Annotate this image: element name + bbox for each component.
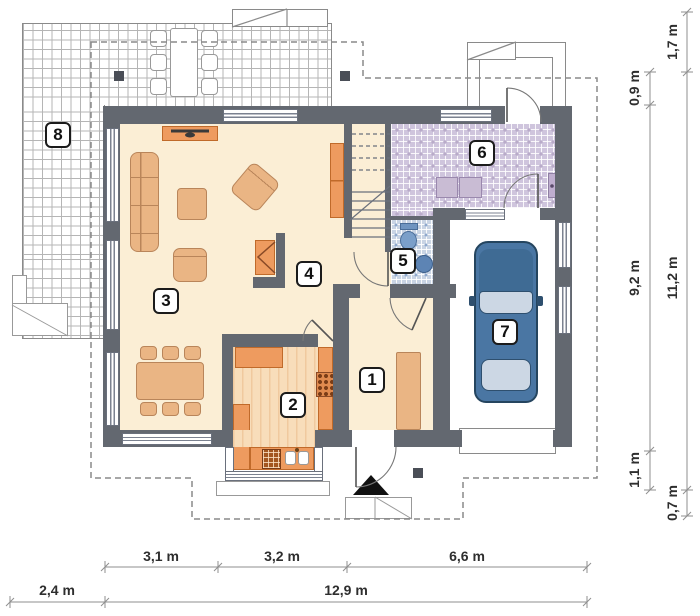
car-windshield	[479, 291, 533, 314]
wall	[333, 284, 360, 298]
dishwasher	[262, 449, 281, 469]
bay-window	[225, 471, 323, 481]
washbasin	[415, 255, 433, 273]
patio-chair	[150, 78, 167, 95]
dining-chair	[184, 346, 201, 360]
terrace-step	[12, 275, 27, 305]
wall	[540, 208, 557, 220]
room-number: 3	[161, 291, 170, 311]
hall-sidelight	[465, 209, 505, 220]
room-number: 6	[477, 143, 486, 163]
wall	[391, 216, 433, 220]
kitchen-counter	[235, 347, 283, 368]
patio-chair	[201, 78, 218, 95]
window	[106, 128, 119, 222]
room-label-4: 4	[296, 261, 322, 287]
coffee-table	[177, 188, 207, 220]
dining-table	[136, 362, 204, 400]
car-hood	[479, 249, 533, 293]
dim-label-3-2m: 3,2 m	[264, 548, 300, 564]
dim-label-1-7m: 1,7 m	[664, 24, 680, 60]
window	[106, 352, 119, 426]
entry-steps	[345, 497, 412, 519]
dim-label-9-2m: 9,2 m	[626, 260, 642, 296]
room-number: 2	[288, 395, 297, 415]
sink-basin	[285, 451, 296, 465]
entrance-arrow-icon	[353, 475, 389, 495]
garage-opening	[462, 430, 553, 447]
tv-cabinet	[162, 126, 218, 141]
wall	[344, 124, 352, 238]
wall	[390, 284, 456, 298]
patio-table	[170, 28, 198, 97]
wardrobe	[396, 352, 421, 430]
porch-post	[114, 71, 124, 81]
window	[440, 109, 492, 122]
room-label-5: 5	[390, 248, 416, 274]
wall	[222, 334, 318, 347]
porch-post	[340, 71, 350, 81]
armchair	[173, 248, 207, 282]
room-number: 4	[304, 264, 313, 284]
patio-chair	[201, 30, 218, 47]
chimney	[232, 9, 328, 27]
fireplace	[255, 240, 275, 275]
window	[558, 286, 571, 334]
window	[122, 433, 212, 445]
dim-label-0-7m: 0,7 m	[664, 485, 680, 521]
wall	[555, 106, 572, 447]
door-opening	[318, 334, 333, 347]
wall	[433, 208, 450, 284]
door-opening	[352, 430, 394, 447]
wall	[333, 298, 349, 430]
sink-basin	[298, 451, 309, 465]
room-label-7: 7	[492, 319, 518, 345]
dining-chair	[162, 402, 179, 416]
door-opening	[505, 106, 540, 124]
bay-step	[216, 481, 330, 496]
dining-chair	[140, 346, 157, 360]
dim-label-0-9m: 0,9 m	[626, 70, 642, 106]
room-label-6: 6	[469, 140, 495, 166]
dim-label-12-9m: 12,9 m	[324, 582, 368, 598]
fireplace-wall	[253, 277, 285, 288]
window	[106, 240, 119, 330]
window	[223, 109, 298, 122]
dining-chair	[184, 402, 201, 416]
car-rear-window	[481, 359, 531, 391]
room-number: 5	[398, 251, 407, 271]
wall	[433, 298, 450, 430]
toilet-cistern	[400, 223, 418, 230]
room-label-2: 2	[280, 392, 306, 418]
stair-cabinet	[330, 143, 344, 218]
entry-canopy-inner	[479, 57, 553, 108]
dim-label-1-1m: 1,1 m	[626, 452, 642, 488]
car-mirror	[469, 296, 475, 306]
room-label-1: 1	[359, 367, 385, 393]
room-number: 8	[53, 125, 62, 145]
sofa	[130, 152, 159, 252]
dim-label-2-4m: 2,4 m	[39, 582, 75, 598]
wall	[222, 334, 233, 447]
stove	[316, 372, 334, 397]
dining-chair	[162, 346, 179, 360]
dim-label-11-2m: 11,2 m	[664, 257, 680, 300]
dim-label-6-6m: 6,6 m	[449, 548, 485, 564]
window	[558, 222, 571, 268]
porch-post	[413, 468, 423, 478]
doormat	[459, 177, 482, 198]
doormat	[436, 177, 458, 198]
door-opening	[360, 284, 390, 298]
patio-chair	[150, 30, 167, 47]
floor-plan: 8 3 4 2 1 5 6 7 3,1 m 3,2 m 6,6 m 2,4 m …	[0, 0, 700, 616]
room-number: 1	[367, 370, 376, 390]
car-mirror	[537, 296, 543, 306]
chimney	[467, 42, 516, 60]
dining-chair	[140, 402, 157, 416]
room-label-8: 8	[45, 122, 71, 148]
room-label-3: 3	[153, 288, 179, 314]
bay-opening	[233, 430, 315, 447]
dim-label-3-1m: 3,1 m	[143, 548, 179, 564]
wall	[385, 124, 391, 252]
wall	[103, 106, 572, 124]
room-number: 7	[500, 322, 509, 342]
terrace-step	[12, 303, 68, 336]
patio-chair	[201, 54, 218, 71]
patio-chair	[150, 54, 167, 71]
